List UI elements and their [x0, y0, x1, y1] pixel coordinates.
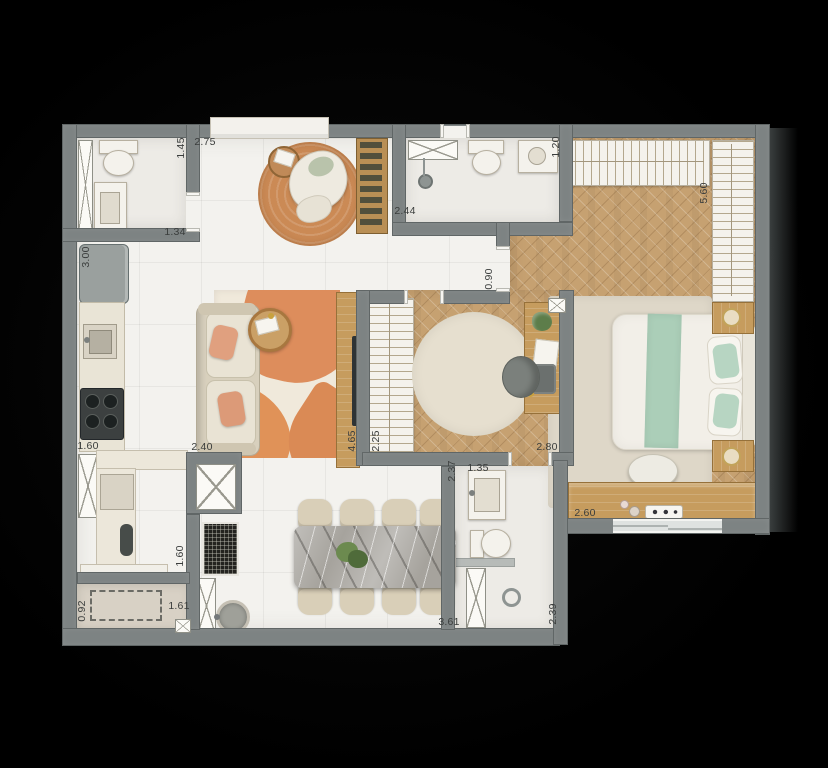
dining-chair	[340, 585, 374, 615]
faucet-icon	[469, 490, 475, 496]
wine-bottles-icon	[360, 142, 382, 228]
shower-arm	[423, 158, 425, 176]
window-pane-line	[613, 525, 668, 527]
window-pane-line	[668, 528, 722, 530]
wall-bath-br-left	[441, 466, 455, 630]
door-jamb	[186, 228, 200, 232]
entry-console	[210, 117, 329, 139]
toilet-bowl	[103, 150, 134, 176]
linen-cabinet	[78, 140, 93, 230]
shower-head-icon	[418, 174, 433, 189]
wall-balcony-divider	[77, 572, 190, 584]
plant-centerpiece	[348, 550, 368, 568]
toilet-bowl	[481, 529, 511, 558]
dimension-label: 1.61	[168, 600, 189, 612]
shaft-marker	[548, 298, 566, 313]
dimension-label: 1.35	[467, 462, 488, 474]
dining-chair	[340, 499, 374, 529]
faucet-icon	[84, 337, 90, 343]
dresser-tray	[645, 505, 683, 519]
dining-chair	[298, 585, 332, 615]
dimension-label: 0.90	[483, 268, 495, 289]
sofa-armrest	[198, 303, 256, 315]
shower-enclosure	[408, 140, 458, 160]
door-jamb	[186, 192, 200, 196]
decor-icon	[268, 313, 274, 319]
wall-left	[62, 124, 77, 645]
entry-door-gap	[443, 126, 467, 138]
floor-plan: 2.75 1.45 1.34 2.44 1.20 5.60 3.00 0.90 …	[0, 0, 828, 768]
dining-table	[294, 526, 456, 588]
closet-wardrobe-right	[712, 140, 754, 302]
dimension-label: 5.60	[698, 182, 710, 203]
dimension-label: 2.80	[536, 441, 557, 453]
door-jamb	[548, 452, 552, 466]
door-jamb	[496, 288, 510, 292]
toilet-bowl	[472, 150, 501, 175]
laundry-counter	[96, 450, 188, 470]
wall-right	[755, 124, 770, 535]
shaft-marker	[175, 619, 191, 633]
accent-pillow	[712, 393, 740, 430]
wall-bedroom2-bottom	[362, 452, 512, 466]
burner-icon	[85, 414, 100, 429]
closet-wardrobe-top	[566, 140, 710, 186]
wall-bottom	[62, 628, 560, 646]
door-jamb	[404, 290, 408, 304]
perfume-bottle-icon	[629, 506, 640, 517]
bed-green-runner	[644, 314, 681, 449]
washer	[100, 474, 134, 510]
dimension-label: 1.60	[174, 545, 186, 566]
headboard	[742, 326, 756, 446]
sink	[100, 192, 120, 224]
wall-shadow	[770, 128, 798, 532]
dimension-label: 1.34	[164, 226, 185, 238]
dimension-label: 1.45	[175, 137, 187, 158]
burner-icon	[85, 394, 100, 409]
dimension-label: 2.60	[574, 507, 595, 519]
wall-top	[62, 124, 770, 138]
tall-cabinet	[78, 454, 98, 518]
door-jamb	[440, 290, 444, 304]
throw-pillow	[216, 390, 246, 427]
table-lamp-icon	[722, 308, 741, 327]
sink	[528, 147, 546, 165]
door-jamb	[466, 124, 470, 138]
perfume-bottle-icon	[620, 500, 629, 509]
closet-rail	[731, 144, 732, 296]
burner-icon	[103, 414, 118, 429]
door-jamb	[496, 246, 510, 250]
wall-bedroom2-right	[559, 290, 574, 460]
dimension-label: 3.00	[80, 246, 92, 267]
shower-partition	[455, 558, 515, 567]
closet-rail	[570, 161, 704, 162]
appliance-handle	[120, 524, 133, 556]
dimension-label: 0.92	[76, 600, 88, 621]
ac-grille	[202, 522, 239, 576]
door-jamb	[508, 452, 512, 466]
wall-bath-tm-left	[392, 124, 406, 236]
wall-bath-tm-bottom	[392, 222, 573, 236]
dining-chair	[298, 499, 332, 529]
burner-icon	[103, 394, 118, 409]
linen-cabinet	[466, 568, 486, 628]
dimension-label: 3.61	[438, 616, 459, 628]
dimension-label: 2.39	[547, 603, 559, 624]
dimension-label: 4.65	[346, 430, 358, 451]
wall-bedroom2-left	[356, 290, 370, 466]
desk-chair	[502, 356, 540, 398]
dimension-label: 2.25	[370, 430, 382, 451]
dimension-label: 2.37	[446, 460, 458, 481]
plant-icon	[532, 312, 552, 331]
dining-chair	[382, 499, 416, 529]
balcony-dashed-projection	[90, 590, 162, 621]
faucet-icon	[214, 614, 220, 620]
wardrobe-rail	[389, 302, 390, 452]
dining-chair	[382, 585, 416, 615]
accent-pillow	[712, 342, 740, 379]
shaft-marker	[196, 464, 236, 510]
door-jamb	[440, 124, 444, 138]
sink	[474, 478, 500, 512]
wall-bedroom2-top	[440, 290, 510, 304]
floor-drain-icon	[502, 588, 521, 607]
table-lamp-icon	[722, 447, 741, 466]
dimension-label: 2.44	[394, 205, 415, 217]
dimension-label: 2.40	[191, 441, 212, 453]
dimension-label: 1.20	[550, 136, 562, 157]
wall-bath-tl-right	[186, 124, 200, 196]
kitchen-sink-basin	[89, 330, 112, 354]
dimension-label: 2.75	[194, 136, 215, 148]
dimension-label: 1.60	[77, 440, 98, 452]
